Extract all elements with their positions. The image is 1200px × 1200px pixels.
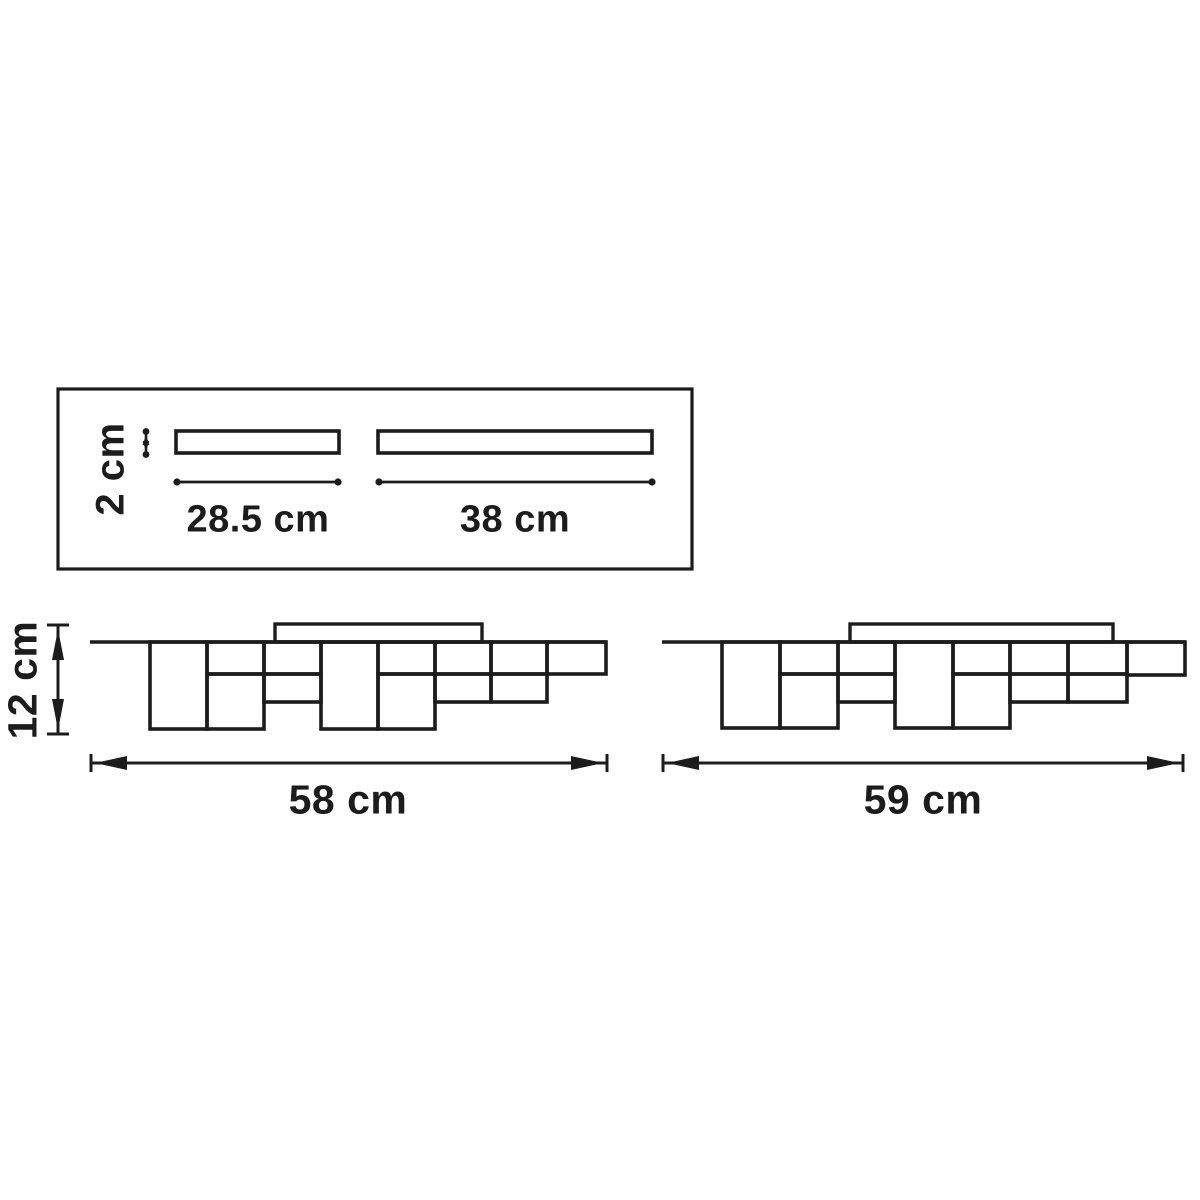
right-width-dimension-label: 59 cm [864,777,983,824]
top-view-outline [58,389,692,569]
block [895,642,953,728]
dimension-dot-icon [334,478,341,485]
dimension-dot-icon [173,478,180,485]
bar2-length-dimension [375,478,655,485]
mounting-plate [850,624,1113,642]
arrow-down-icon [143,441,150,451]
bar-height-dimension [143,428,150,458]
bar2-length-dimension-label: 38 cm [460,499,570,542]
arrow-up-icon [52,629,64,660]
block [838,642,895,674]
block [435,642,491,674]
block [780,674,838,728]
block [547,642,606,674]
block [435,674,491,702]
bar-height-dimension-label: 2 cm [89,422,134,515]
block [491,674,547,702]
dimension-dot-icon [648,478,655,485]
left-side-view [47,624,607,772]
arrow-right-icon [571,756,603,770]
left-width-dimension [91,754,607,772]
block [953,674,1010,728]
bar1-length-dimension [173,478,341,485]
dimension-drawing [0,0,1200,1200]
arrow-down-icon [52,699,64,730]
block [953,642,1010,674]
block [838,674,895,702]
block [1010,642,1068,674]
block [1127,642,1185,675]
block [264,642,321,674]
block [207,674,264,729]
block [378,642,435,674]
light-bar-large [378,431,652,453]
block [378,674,435,729]
arrow-right-icon [1147,756,1179,770]
dimension-dot-icon [143,451,150,458]
left-width-dimension-label: 58 cm [289,777,408,824]
block [1068,674,1127,702]
block [1068,642,1127,674]
right-width-dimension [663,754,1183,772]
block [491,642,547,674]
dimension-dot-icon [143,428,150,435]
bar1-length-dimension-label: 28.5 cm [187,499,330,542]
arrow-left-icon [95,756,127,770]
top-view [58,389,692,569]
block [780,642,838,674]
right-side-view [662,624,1185,772]
block [321,642,378,729]
block [722,642,780,728]
height-dimension-label: 12 cm [0,621,47,740]
block [1010,674,1068,702]
block [150,642,207,729]
dimension-dot-icon [375,478,382,485]
mounting-plate [275,624,482,642]
height-dimension [47,625,69,734]
block [264,674,321,702]
light-bar-small [176,431,339,453]
block [207,642,264,674]
technical-drawing-page: 2 cm 28.5 cm 38 cm 12 cm 58 cm 59 cm [0,0,1200,1200]
arrow-left-icon [667,756,699,770]
